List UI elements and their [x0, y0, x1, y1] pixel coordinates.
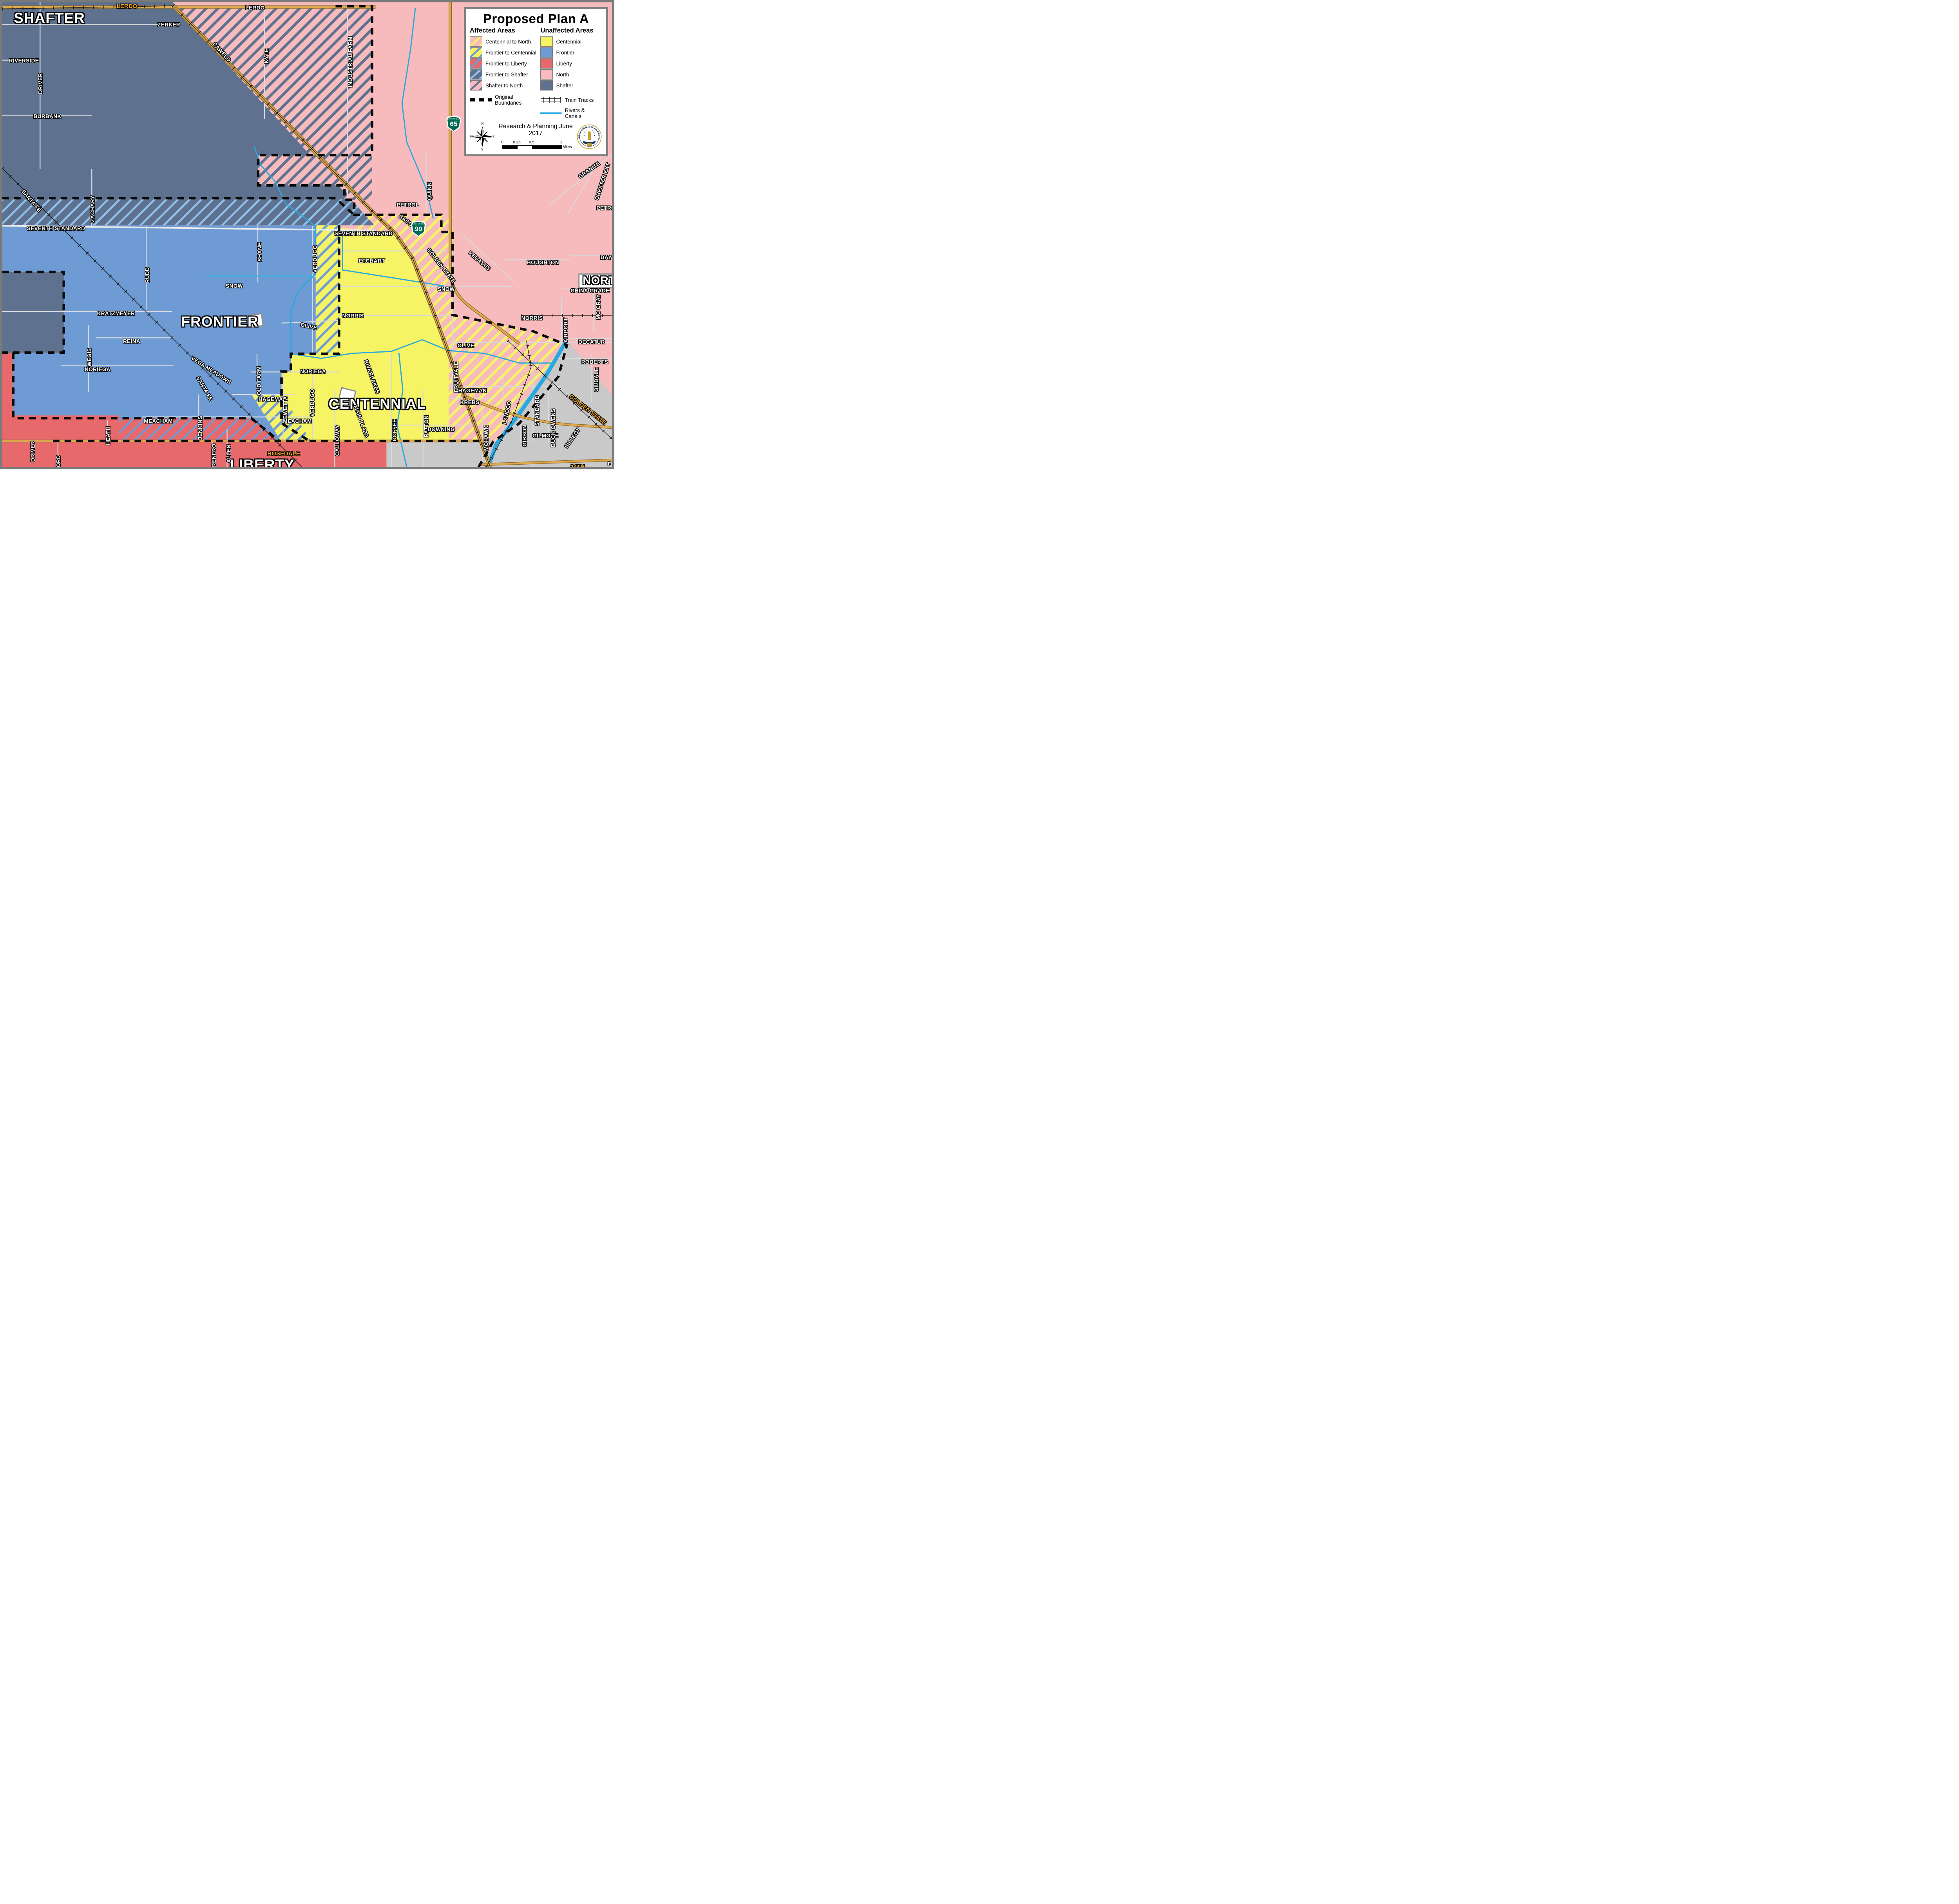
road-label-china-grade: CHINA GRADE	[570, 288, 609, 293]
road-label-allen: ALLEN	[226, 445, 232, 463]
legend-item-shafter-to-north: Shafter to North	[470, 80, 539, 91]
legend-swatch	[540, 47, 553, 58]
road-label-norris: NORRIS	[342, 313, 364, 319]
road-label-fruitvale: FRUITVALE	[453, 362, 459, 392]
road-label-kratzmeyer: KRATZMEYER	[97, 311, 135, 316]
road-label-meacham: MEACHAM	[144, 418, 172, 424]
road-label-rosedale: ROSEDALE	[267, 451, 300, 457]
legend-swatch	[470, 36, 482, 47]
compass-w: W	[470, 135, 473, 139]
road-label-seventh-standard: SEVENTH STANDARD	[335, 231, 393, 236]
unaffected-areas-header: Unaffected Areas	[540, 27, 602, 34]
legend-swatch	[470, 69, 482, 80]
road-label-mc-cray: MC CRAY	[596, 294, 601, 320]
road-label-day: DAY	[601, 255, 612, 260]
road-label-jenkins: JENKINS	[197, 416, 203, 440]
legend-item-frontier-to-shafter: Frontier to Shafter	[470, 69, 539, 80]
legend-panel: Proposed Plan A Affected Areas Centennia…	[464, 7, 608, 156]
region-label-frontier: FRONTIER	[181, 315, 258, 329]
road-label-norris: NORRIS	[521, 315, 543, 321]
road-label-24th: 24TH	[570, 464, 585, 470]
road-label-snow: SNOW	[226, 283, 243, 289]
road-label-nord: NORD	[56, 455, 61, 469]
road-label-f: F	[608, 462, 610, 466]
credit-text: Research & Planning June 2017	[495, 123, 576, 137]
road-label-hageman: HAGEMAN	[458, 388, 487, 393]
compass-e: E	[492, 135, 495, 139]
legend-item-frontier: Frontier	[540, 47, 602, 58]
road-label-renfro: RENFRO	[211, 443, 217, 467]
khsd-logo: KERN HIGH SCHOOL DISTRICT	[576, 123, 602, 150]
road-label-etchart: ETCHART	[358, 258, 385, 264]
road-label-reina: REINA	[123, 338, 140, 344]
unaffected-areas-list: CentennialFrontierLibertyNorthShafter	[540, 36, 602, 91]
affected-areas-list: Centennial to NorthFrontier to Centennia…	[470, 36, 539, 91]
road-label-decatur: DECATUR	[578, 339, 605, 345]
road-label-verdugo: VERDUGO	[310, 389, 315, 416]
region-shafter-notch	[2, 272, 64, 353]
road-label-wegis: WEGIS	[87, 348, 92, 366]
road-label-heath: HEATH	[105, 426, 111, 445]
road-label-zachary: ZACHARY	[90, 195, 95, 222]
legend-item-liberty: Liberty	[540, 58, 602, 69]
road-label-petrol: PETROL	[397, 202, 419, 208]
road-label-oildale: OILDALE	[594, 367, 599, 392]
road-label-old-farm: OLD FARM	[256, 366, 262, 395]
legend-item-frontier-to-liberty: Frontier to Liberty	[470, 58, 539, 69]
legend-swatch	[540, 36, 553, 47]
road-label-noriega: NORIEGA	[85, 367, 110, 372]
dashed-line-swatch	[470, 98, 492, 101]
road-label-quinn: QUINN	[427, 182, 432, 200]
road-label-mohawk: MOHAWK	[483, 425, 489, 451]
road-label-olive: OLIVE	[458, 343, 474, 348]
road-label-shane: SHANE	[257, 242, 263, 261]
road-label-lerdo: LERDO	[117, 4, 138, 9]
area-outside-district	[386, 441, 493, 467]
region-label-north: NORTH	[578, 273, 614, 289]
legend-item-centennial: Centennial	[540, 36, 602, 47]
river-line-swatch	[540, 112, 562, 114]
region-label-shafter: SHAFTER	[14, 11, 85, 25]
road-label-rudd: RUDD	[145, 267, 150, 283]
road-label-gibson: GIBSON	[522, 425, 527, 447]
legend-rivers-canals: Rivers & Canals	[540, 107, 602, 119]
affected-areas-header: Affected Areas	[470, 27, 539, 34]
legend-swatch	[470, 58, 482, 69]
road-label-kyte: KYTE	[264, 49, 269, 63]
road-label-krebs: KREBS	[460, 400, 479, 405]
compass-n: N	[481, 121, 484, 125]
road-label-noriega: NORIEGA	[300, 369, 326, 374]
road-label-driver: DRIVER	[38, 73, 43, 94]
legend-item-shafter: Shafter	[540, 80, 602, 91]
road-label-petrol: PETROL	[596, 205, 614, 211]
legend-original-boundaries: Original Boundaries	[470, 94, 540, 106]
region-frontier-to-centennial	[316, 225, 339, 354]
road-label-roberts: ROBERTS	[581, 359, 608, 365]
legend-swatch	[540, 58, 553, 69]
legend-item-frontier-to-centennial: Frontier to Centennial	[470, 47, 539, 58]
road-label-coffee: COFFEE	[392, 419, 397, 441]
road-label-boughton: BOUGHTON	[527, 260, 559, 265]
road-label-lerdo: LERDO	[245, 5, 264, 11]
scale-bar: 0 0.25 0.5 1 Miles	[502, 140, 569, 150]
legend-item-centennial-to-north: Centennial to North	[470, 36, 539, 47]
road-label-snow: SNOW	[438, 286, 455, 292]
train-track-swatch	[540, 97, 562, 103]
region-label-centennial: CENTENNIAL	[329, 397, 426, 411]
road-label-zerker: ZERKER	[158, 22, 180, 27]
road-label-standard: STANDARD	[534, 395, 540, 426]
compass-rose: N E S W	[470, 122, 495, 151]
legend-train-tracks: Train Tracks	[540, 97, 602, 103]
road-label-airport: AIRPORT	[563, 318, 569, 343]
legend-swatch	[540, 69, 553, 80]
road-label-riverside: RIVERSIDE	[9, 58, 39, 63]
road-label-burbank: BURBANK	[33, 114, 61, 119]
legend-swatch	[470, 47, 482, 58]
region-frontier-to-shafter	[2, 199, 375, 225]
road-label-downing: DOWNING	[427, 427, 455, 432]
legend-title: Proposed Plan A	[470, 11, 602, 26]
map-stage: SHAFTERFRONTIERCENTENNIALLIBERTYNORTHLER…	[0, 0, 614, 469]
compass-s: S	[481, 147, 483, 151]
legend-swatch	[540, 80, 553, 90]
region-label-liberty: LIBERTY	[230, 458, 294, 470]
road-label-verdugo: VERDUGO	[312, 245, 318, 273]
road-label-calloway: CALLOWAY	[335, 425, 340, 456]
road-label-industrial-farm: INDUSTRIAL FARM	[348, 36, 353, 87]
road-label-seventh-standard: SEVENTH STANDARD	[27, 226, 85, 231]
legend-swatch	[470, 80, 482, 90]
road-label-driver: DRIVER	[30, 441, 36, 462]
legend-item-north: North	[540, 69, 602, 80]
road-label-meacham: MEACHAM	[283, 418, 311, 424]
road-label-buck-owens: BUCK OWENS	[550, 409, 556, 447]
